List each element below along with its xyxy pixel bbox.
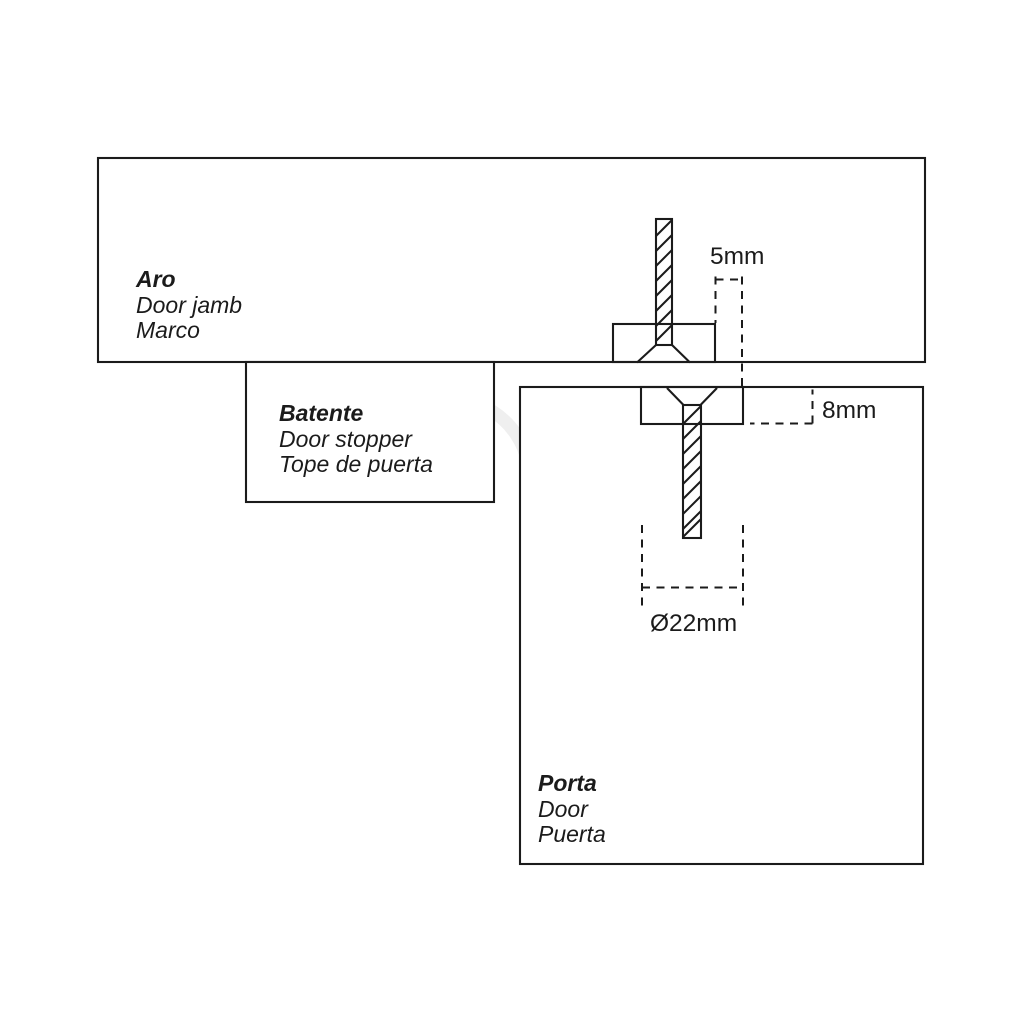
dimension-label-8mm: 8mm (822, 397, 876, 424)
dimension-label-5mm: 5mm (710, 243, 764, 270)
part-name-es: Puerta (538, 821, 606, 847)
diagram-canvas: 5mm 8mm Ø22mm Aro Door jamb Marco Batent… (0, 0, 1024, 1024)
part-name-en: Door jamb (136, 292, 242, 318)
part-name-en: Door (538, 796, 589, 822)
dimension-label-22mm: Ø22mm (650, 610, 737, 637)
door-jamb-rect (98, 158, 925, 362)
door-stop-technical-diagram: 5mm 8mm Ø22mm Aro Door jamb Marco Batent… (0, 0, 1024, 1024)
part-name-es: Marco (136, 317, 200, 343)
part-name-es: Tope de puerta (279, 451, 433, 477)
part-name-pt: Porta (538, 770, 597, 796)
part-name-pt: Aro (135, 266, 176, 292)
part-name-pt: Batente (279, 400, 364, 426)
part-name-en: Door stopper (279, 426, 413, 452)
